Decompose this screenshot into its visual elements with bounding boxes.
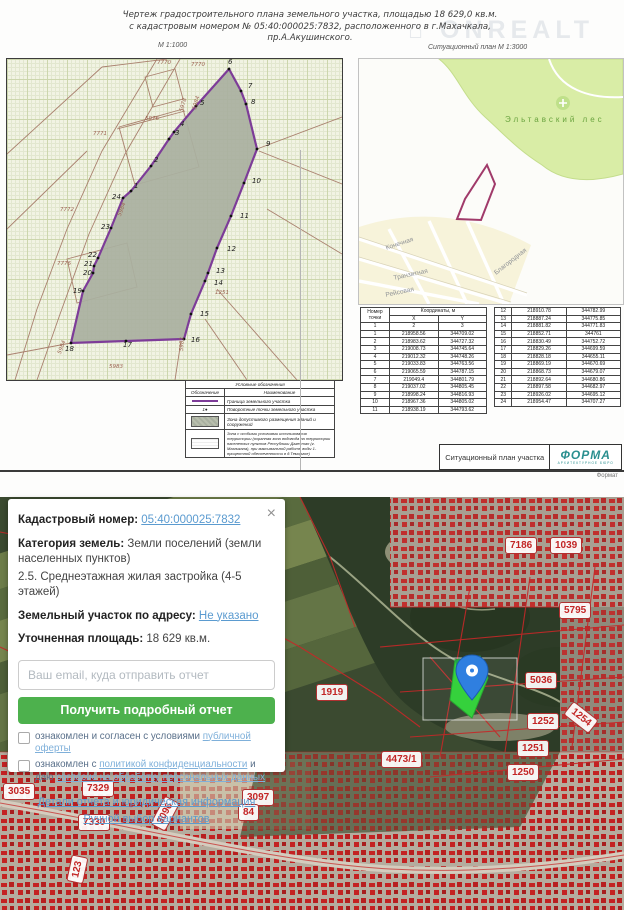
table-row: 1218958.56344709.02: [361, 330, 487, 338]
parcel-label-pill: 5795: [559, 602, 591, 619]
vertex-number: 18: [65, 345, 74, 353]
title-block-label: Ситуационный план участка: [440, 445, 550, 469]
table-row: 18218828.18344655.11: [495, 353, 621, 361]
title-line-2: с кадастровым номером № 05:40:000025:783…: [90, 22, 530, 34]
legend-table: Условные обозначения ОбозначениеНаименов…: [185, 380, 335, 458]
report-details-link[interactable]: Детали отчета и юридическая информация: [38, 796, 256, 808]
offer-consent-row: ознакомлен и согласен с условиями публич…: [18, 731, 275, 756]
document-title: Чертеж градостроительного плана земельно…: [90, 10, 530, 45]
sheet-bottom-border: [0, 470, 624, 472]
parcel-label-pill: 1919: [316, 684, 348, 701]
card-footer-links: Детали отчета и юридическая информация Р…: [18, 794, 275, 829]
address-link[interactable]: Не указано: [199, 610, 259, 622]
cadastral-document: ⌂ ONREALT Чертеж градостроительного план…: [0, 0, 624, 497]
zoning-row: 2.5. Среднеэтажная жилая застройка (4-5 …: [18, 570, 275, 601]
legend-specialzone-swatch: [191, 438, 219, 449]
coords-table-right: 12218910.78344782.9913218887.24344775.85…: [494, 307, 621, 407]
area-label: Уточненная площадь:: [18, 633, 143, 645]
email-input[interactable]: [18, 660, 275, 690]
title-line-1: Чертеж градостроительного плана земельно…: [90, 10, 530, 22]
vertex-number: 3: [175, 129, 179, 137]
table-row: 3219008.73344745.64: [361, 345, 487, 353]
vertex-number: 10: [252, 177, 261, 185]
offer-consent-text: ознакомлен и согласен с условиями публич…: [35, 731, 275, 756]
table-row: 17218829.26344699.59: [495, 345, 621, 353]
cadastral-number-row: Кадастровый номер: 05:40:000025:7832: [18, 513, 275, 529]
vertex-number: 8: [251, 98, 255, 106]
sheet-fold-line: [300, 150, 301, 470]
vertex-number: 23: [101, 223, 110, 231]
privacy-consent-row: ознакомлен с политикой конфиденциальност…: [18, 759, 275, 784]
vertex-number: 16: [191, 336, 200, 344]
title-block-logo: ФОРМА АРХИТЕКТУРНОЕ БЮРО: [550, 445, 621, 469]
privacy-policy-link[interactable]: политикой конфиденциальности: [99, 759, 247, 770]
table-row: 5219033.83344763.56: [361, 361, 487, 369]
vertex-number: 20: [83, 269, 92, 277]
situational-plan: Эльтавский лес КонечнаяТранзитнаяРейсова…: [358, 58, 624, 305]
table-row: 10218967.36344805.02: [361, 399, 487, 407]
parcel-label-pill: 1039: [550, 537, 582, 554]
table-row: 13218887.24344775.85: [495, 315, 621, 323]
vertex-number: 4: [180, 120, 184, 128]
privacy-consent-text: ознакомлен с политикой конфиденциальност…: [35, 759, 275, 784]
table-row: 19218869.19344670.69: [495, 361, 621, 369]
vertex-number: 5: [200, 99, 204, 107]
table-row: 2218983.62344727.32: [361, 338, 487, 346]
parcel-label-pill: 1251: [517, 740, 549, 757]
forma-logo: ФОРМА: [561, 449, 611, 461]
table-row: 11218938.19344793.62: [361, 406, 487, 414]
table-row: 20218868.73344679.07: [495, 368, 621, 376]
parcel-number: 7776: [57, 261, 71, 267]
parcel-label-pill: 1252: [527, 713, 559, 730]
table-row: 22218897.58344682.97: [495, 383, 621, 391]
vertex-number: 21: [84, 260, 93, 268]
cadastral-number-link[interactable]: 05:40:000025:7832: [141, 514, 240, 526]
table-row: 6219065.59344787.15: [361, 368, 487, 376]
scale-label-right: Ситуационный план М 1:3000: [428, 44, 527, 51]
situational-plan-drawing: [359, 59, 623, 304]
parcel-label-pill: 1250: [507, 764, 539, 781]
cadastral-number-label: Кадастровый номер:: [18, 514, 138, 526]
parcel-number: 1251: [215, 290, 229, 296]
vertex-number: 19: [73, 287, 82, 295]
forest-label: Эльтавский лес: [505, 115, 605, 124]
personal-data-link[interactable]: согласие на обработку персональных данны…: [56, 772, 265, 783]
vertex-number: 14: [214, 279, 223, 287]
area-row: Уточненная площадь: 18 629 кв.м.: [18, 632, 275, 648]
vertex-number: 22: [88, 251, 97, 259]
vertex-number: 15: [200, 310, 209, 318]
screenshot-root: ⌂ ONREALT Чертеж градостроительного план…: [0, 0, 624, 910]
legend-buildzone-swatch: [191, 416, 219, 427]
vertex-number: 6: [228, 58, 232, 66]
format-label: Формат: [500, 473, 618, 479]
land-category-row: Категория земель: Земли поселений (земли…: [18, 537, 275, 568]
vertex-number: 12: [227, 245, 236, 253]
forma-logo-subtext: АРХИТЕКТУРНОЕ БЮРО: [558, 461, 614, 465]
land-category-label: Категория земель:: [18, 538, 124, 550]
vertex-number: 7: [248, 82, 252, 90]
parcel-number: 5983: [109, 364, 123, 370]
manual-select-link[interactable]: Ручной выбор вариантов: [83, 813, 209, 825]
parcel-number: 7770: [157, 60, 171, 66]
sit-parcel-outline: [457, 165, 495, 220]
parcel-label-pill: 4473/1: [381, 751, 422, 768]
parcel-number: 7770: [191, 62, 205, 68]
table-row: 14218881.82344771.83: [495, 323, 621, 331]
table-row: 16218830.49344752.72: [495, 338, 621, 346]
parcel-label-pill: 5036: [525, 672, 557, 689]
offer-consent-checkbox[interactable]: [18, 732, 30, 744]
table-row: 9218998.24344816.93: [361, 391, 487, 399]
scale-label-left: М 1:1000: [158, 42, 187, 49]
site-plan: 123456789101112131415161718192021222324 …: [6, 58, 343, 381]
parcel-label-pill: 7186: [505, 537, 537, 554]
table-row: 21218892.64344680.86: [495, 376, 621, 384]
address-row: Земельный участок по адресу: Не указано: [18, 609, 275, 625]
table-row: 23218926.02344695.12: [495, 391, 621, 399]
vertex-number: 13: [216, 267, 225, 275]
vertex-number: 9: [266, 140, 270, 148]
parcel-number: 5976: [145, 116, 159, 122]
get-report-button[interactable]: Получить подробный отчет: [18, 697, 275, 724]
site-plan-drawing: [7, 59, 342, 380]
legend-boundary-swatch: [192, 400, 218, 402]
address-label: Земельный участок по адресу:: [18, 610, 196, 622]
coords-table-left: Номер точки Координаты, м XY 123 1218958…: [360, 307, 487, 414]
table-row: 4219012.32344748.26: [361, 353, 487, 361]
vertex-number: 1: [134, 182, 138, 190]
parcel-polygon: [71, 69, 257, 343]
privacy-consent-checkbox[interactable]: [18, 760, 30, 772]
vertex-number: 2: [154, 156, 158, 164]
close-icon[interactable]: ×: [267, 506, 276, 522]
table-row: 7219049.4344801.79: [361, 376, 487, 384]
parcel-number: 7772: [60, 207, 74, 213]
parcel-number: 7771: [93, 131, 107, 137]
vertex-number: 24: [112, 193, 121, 201]
table-row: 8219037.02344805.45: [361, 383, 487, 391]
table-row: 15218852.71344761: [495, 330, 621, 338]
parcel-info-card: × Кадастровый номер: 05:40:000025:7832 К…: [8, 499, 285, 772]
table-row: 12218910.78344782.99: [495, 308, 621, 316]
title-block: Ситуационный план участка ФОРМА АРХИТЕКТ…: [439, 444, 622, 470]
area-value: 18 629 кв.м.: [143, 633, 210, 645]
table-row: 24218954.47344707.27: [495, 399, 621, 407]
parcel-number: 5983: [179, 337, 186, 351]
vertex-number: 17: [123, 341, 132, 349]
vertex-number: 11: [240, 212, 249, 220]
